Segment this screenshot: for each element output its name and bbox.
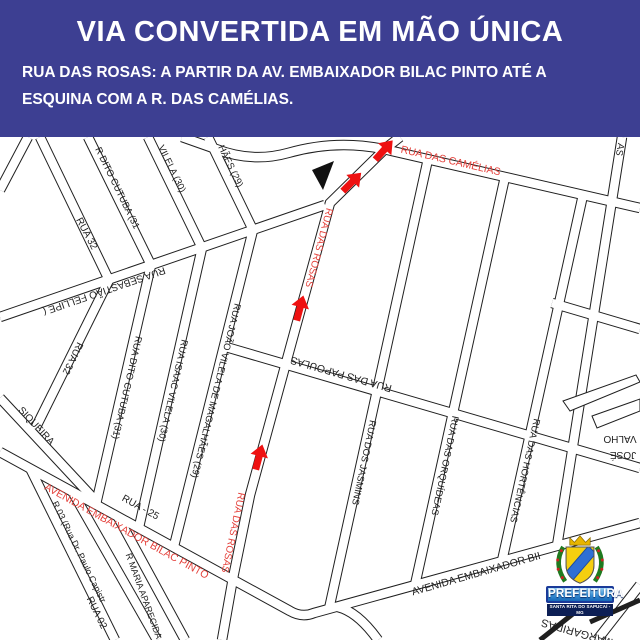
street-label-valho: VALHO xyxy=(603,433,636,444)
announcement-graphic: RUA 32R DITO CUTUBA (31VILELA (30)HÃES (… xyxy=(0,0,640,640)
city-name-banner: SANTA RITA DO SAPUCAÍ - MG xyxy=(547,604,613,616)
coat-of-arms-icon xyxy=(547,534,613,586)
page-subtitle: RUA DAS ROSAS: A PARTIR DA AV. EMBAIXADO… xyxy=(22,59,607,113)
street-label-rightedge: AS xyxy=(613,142,626,156)
prefeitura-banner: PREFEITURA xyxy=(546,586,614,603)
header-banner: VIA CONVERTIDA EM MÃO ÚNICA RUA DAS ROSA… xyxy=(0,0,640,137)
page-title: VIA CONVERTIDA EM MÃO ÚNICA xyxy=(0,16,640,49)
city-logo: PREFEITURA SANTA RITA DO SAPUCAÍ - MG xyxy=(544,534,616,616)
street-label-jose: JOSÉ xyxy=(610,449,636,462)
